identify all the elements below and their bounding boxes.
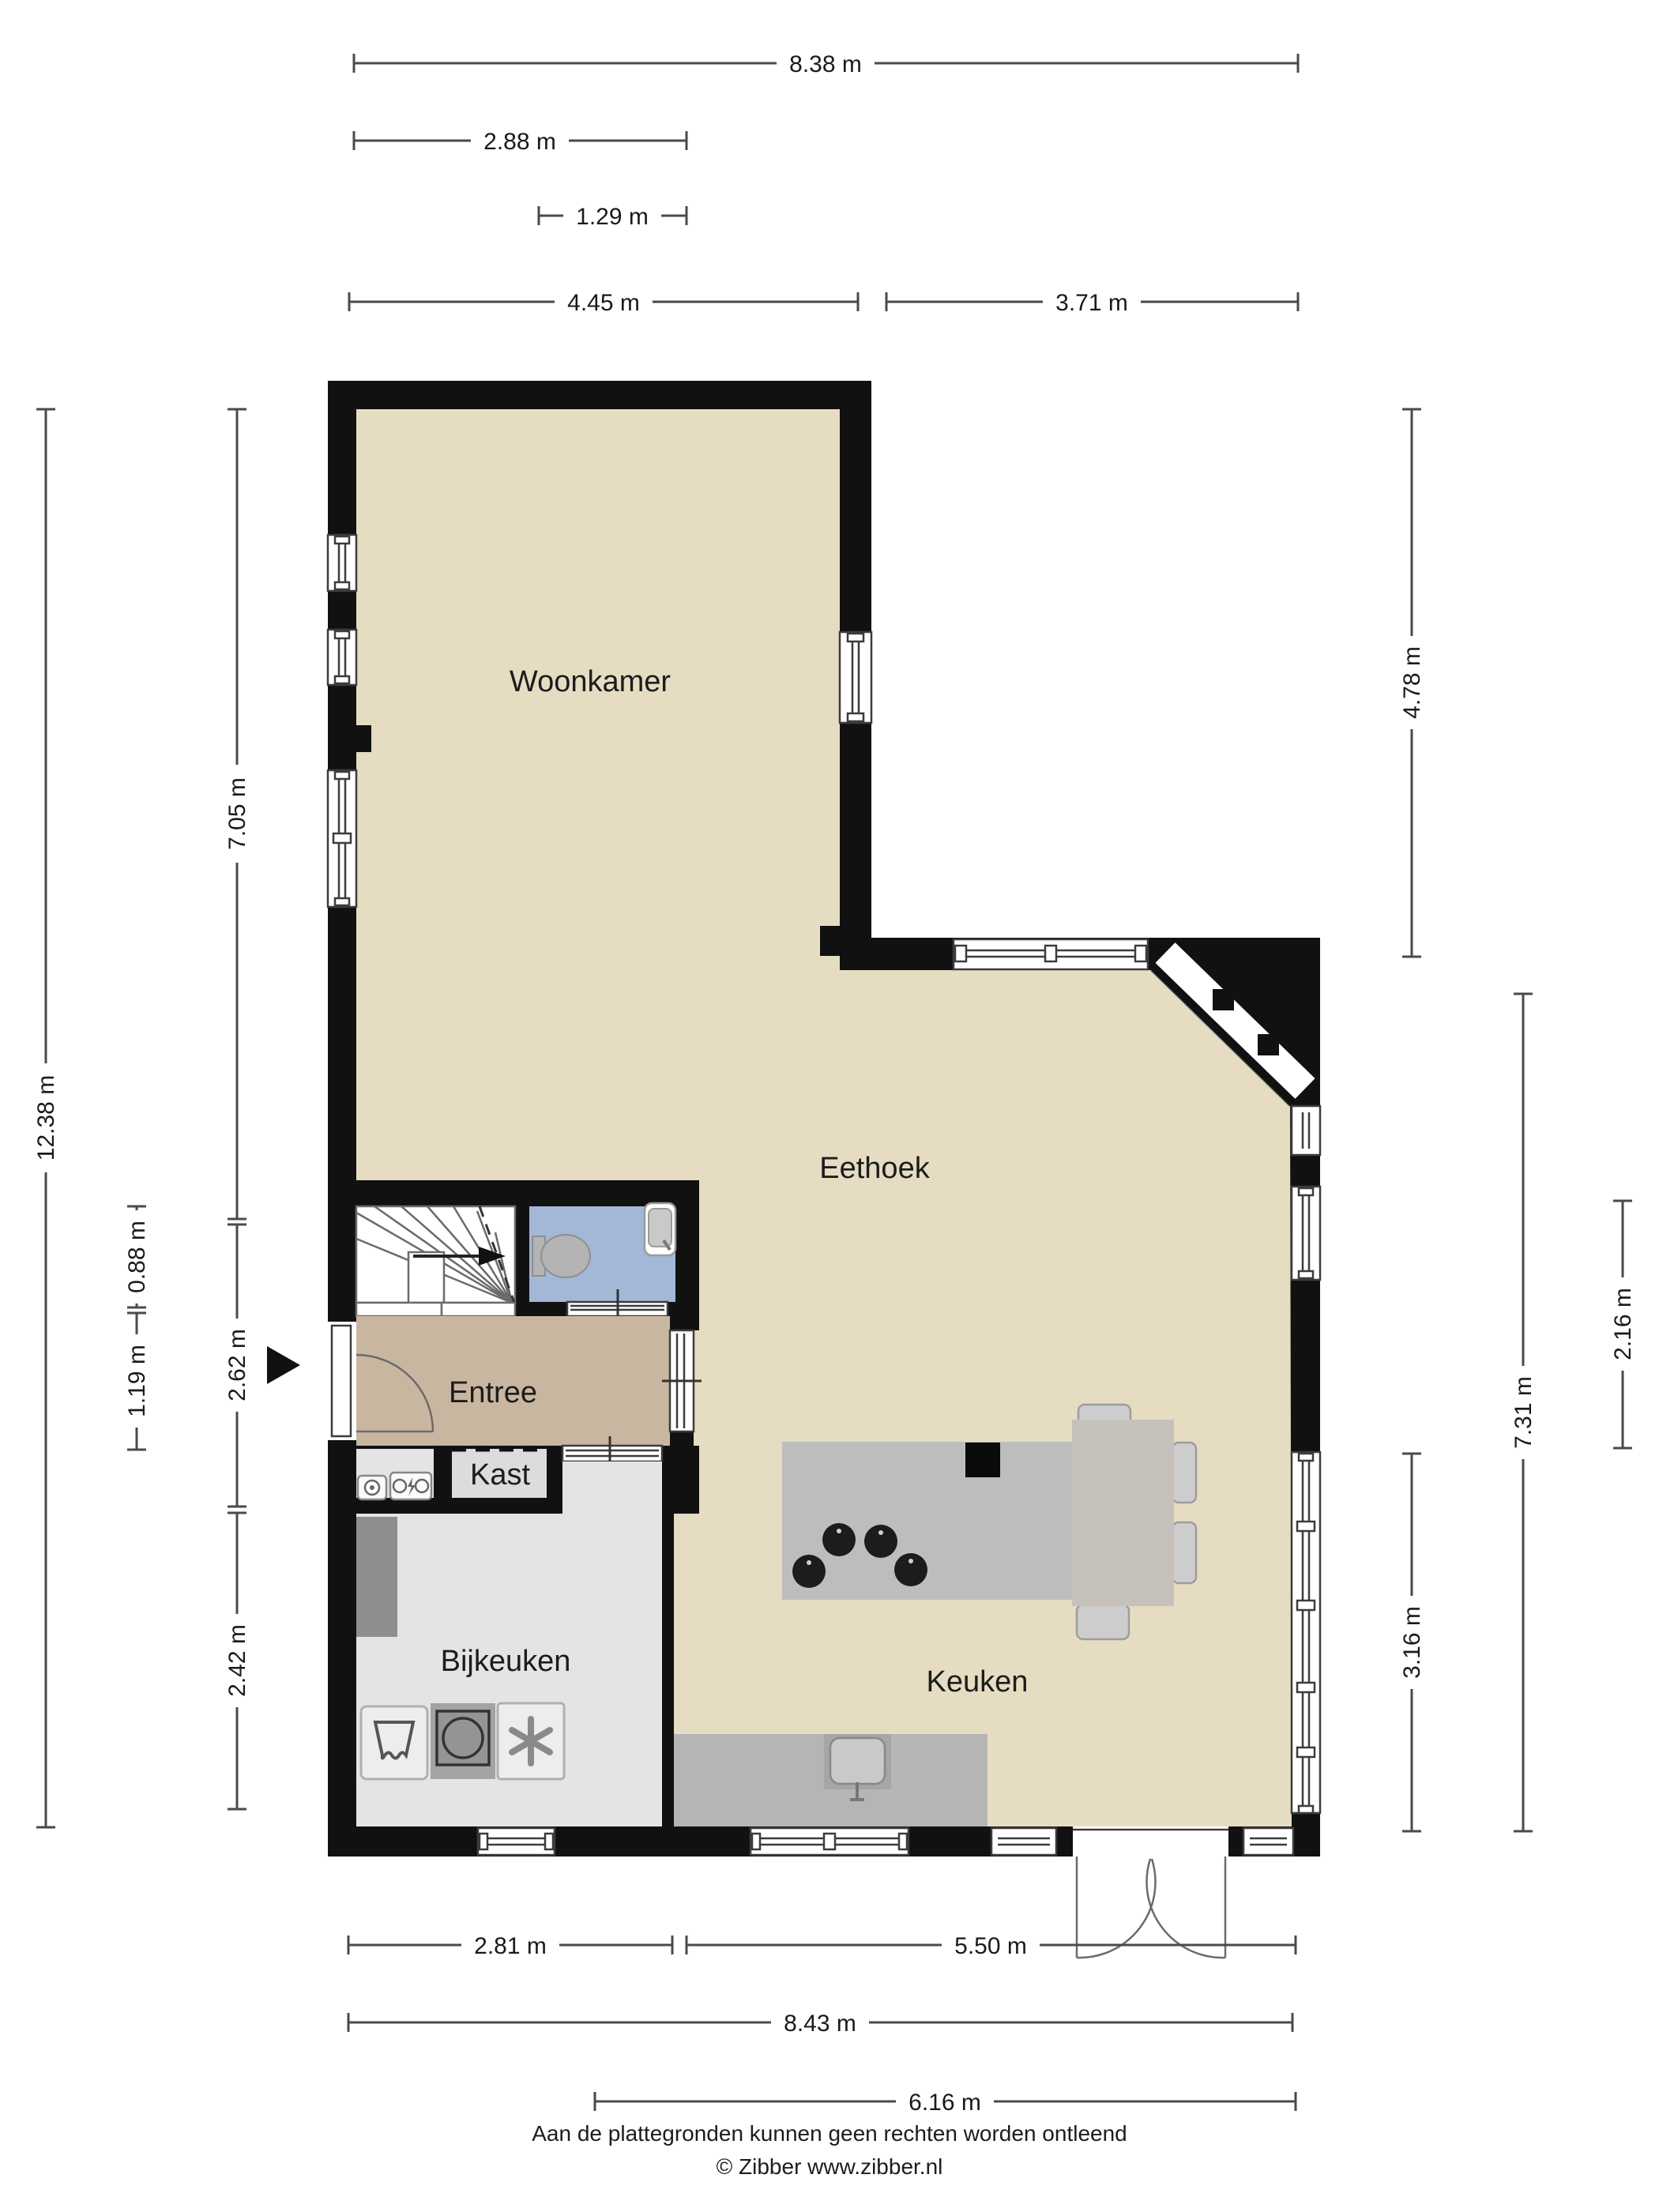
window	[750, 1828, 908, 1855]
svg-text:8.43 m: 8.43 m	[784, 2011, 856, 2037]
entrance-arrow-icon	[267, 1346, 300, 1384]
window	[1292, 1187, 1320, 1280]
svg-text:6.16 m: 6.16 m	[908, 2090, 981, 2116]
dimension: 2.42 m	[222, 1513, 252, 1809]
double-garden-door	[1073, 1826, 1228, 1958]
freezer-icon	[498, 1703, 564, 1779]
dimension: 4.45 m	[349, 287, 858, 317]
window	[1292, 1452, 1320, 1813]
room-label-bijkeuken: Bijkeuken	[441, 1645, 571, 1678]
room-label-keuken: Keuken	[927, 1665, 1029, 1698]
dimension: 7.05 m	[222, 409, 252, 1219]
svg-text:5.50 m: 5.50 m	[954, 1933, 1027, 1959]
dimension: 2.88 m	[354, 126, 687, 156]
washing-machine-icon	[431, 1703, 495, 1779]
dining-table	[1072, 1420, 1174, 1606]
svg-text:2.62 m: 2.62 m	[224, 1329, 250, 1401]
dimension: 8.38 m	[354, 48, 1298, 78]
svg-text:4.45 m: 4.45 m	[567, 290, 640, 316]
woonkamer-right-window	[840, 632, 871, 723]
room-label-eethoek: Eethoek	[819, 1152, 930, 1185]
room-label-entree: Entree	[449, 1376, 537, 1409]
footer-copyright: © Zibber www.zibber.nl	[717, 2154, 943, 2179]
dimension-lines-left: 12.38 m 7.05 m 0.88 m 1.19 m 2.62 m 2.42…	[31, 409, 252, 1827]
chair-icon	[1172, 1443, 1196, 1503]
dimension: 3.71 m	[886, 287, 1298, 317]
room-label-woonkamer: Woonkamer	[510, 665, 671, 698]
svg-text:3.71 m: 3.71 m	[1055, 290, 1128, 316]
wall-stub-right	[820, 926, 840, 956]
window	[1243, 1828, 1293, 1855]
svg-text:7.05 m: 7.05 m	[224, 777, 250, 850]
eethoek-top-window	[954, 939, 1148, 969]
dimension: 12.38 m	[31, 409, 61, 1827]
svg-text:7.31 m: 7.31 m	[1510, 1376, 1537, 1449]
window	[991, 1828, 1056, 1855]
chair-icon	[1077, 1604, 1129, 1639]
svg-text:2.16 m: 2.16 m	[1610, 1288, 1636, 1360]
svg-text:0.88 m: 0.88 m	[124, 1221, 150, 1293]
water-meter-icon	[358, 1476, 386, 1499]
laundry-sink-icon	[361, 1706, 427, 1779]
floor-plan: Woonkamer Eethoek Entree Kast Bijkeuken …	[0, 0, 1659, 2212]
dimension: 6.16 m	[595, 2086, 1296, 2116]
svg-text:1.19 m: 1.19 m	[124, 1345, 150, 1417]
toilet-icon	[532, 1235, 590, 1277]
stairs-icon	[356, 1206, 515, 1316]
stair-toilet-block	[328, 1180, 699, 1330]
dimension: 0.88 m	[122, 1206, 152, 1307]
dimension-lines-top: 8.38 m 2.88 m 1.29 m 4.45 m 3.71 m	[349, 48, 1298, 317]
chair-icon	[1172, 1522, 1196, 1583]
dimension-lines-right: 4.78 m 2.16 m 7.31 m 3.16 m	[1397, 409, 1638, 1831]
svg-text:2.88 m: 2.88 m	[483, 129, 556, 155]
diagonal-window-step	[1258, 1034, 1279, 1055]
room-label-kast: Kast	[470, 1458, 530, 1492]
svg-text:1.29 m: 1.29 m	[576, 204, 649, 230]
footer-disclaimer: Aan de plattegronden kunnen geen rechten…	[532, 2121, 1127, 2146]
svg-text:2.42 m: 2.42 m	[224, 1624, 250, 1697]
tall-cabinet	[356, 1517, 397, 1637]
window	[478, 1828, 555, 1855]
diagonal-window-step	[1213, 989, 1234, 1010]
window	[328, 770, 356, 907]
dimension: 3.16 m	[1397, 1454, 1427, 1831]
dimension: 4.78 m	[1397, 409, 1427, 957]
svg-text:3.16 m: 3.16 m	[1399, 1606, 1425, 1679]
window	[328, 535, 356, 591]
door-swing-icon	[1146, 1859, 1225, 1958]
window	[328, 630, 356, 685]
dimension: 8.43 m	[348, 2007, 1292, 2037]
dimension: 1.29 m	[539, 201, 687, 231]
svg-text:8.38 m: 8.38 m	[789, 51, 862, 77]
dimension: 2.81 m	[348, 1930, 672, 1960]
kitchen-island	[782, 1442, 1072, 1600]
bijkeuken-upper-floor	[562, 1461, 662, 1514]
right-wall-windows	[1292, 1106, 1320, 1813]
window	[1292, 1106, 1320, 1155]
toilet-sink-icon	[645, 1203, 675, 1255]
hob-icon	[965, 1443, 1000, 1477]
wall-stub-left	[356, 725, 371, 752]
svg-text:12.38 m: 12.38 m	[33, 1075, 59, 1161]
dimension-lines-bottom: 2.81 m 5.50 m 8.43 m 6.16 m	[348, 1930, 1296, 2116]
bijkeuken-keuken-wall	[662, 1461, 674, 1826]
svg-text:2.81 m: 2.81 m	[474, 1933, 547, 1959]
dimension: 7.31 m	[1508, 994, 1538, 1831]
svg-text:4.78 m: 4.78 m	[1399, 646, 1425, 719]
electric-meter-icon	[390, 1473, 431, 1499]
door-swing-icon	[1077, 1859, 1156, 1958]
room-bijkeuken	[356, 1461, 674, 1826]
dimension: 2.62 m	[222, 1224, 252, 1507]
dimension: 2.16 m	[1608, 1201, 1638, 1448]
dimension: 1.19 m	[122, 1313, 152, 1450]
